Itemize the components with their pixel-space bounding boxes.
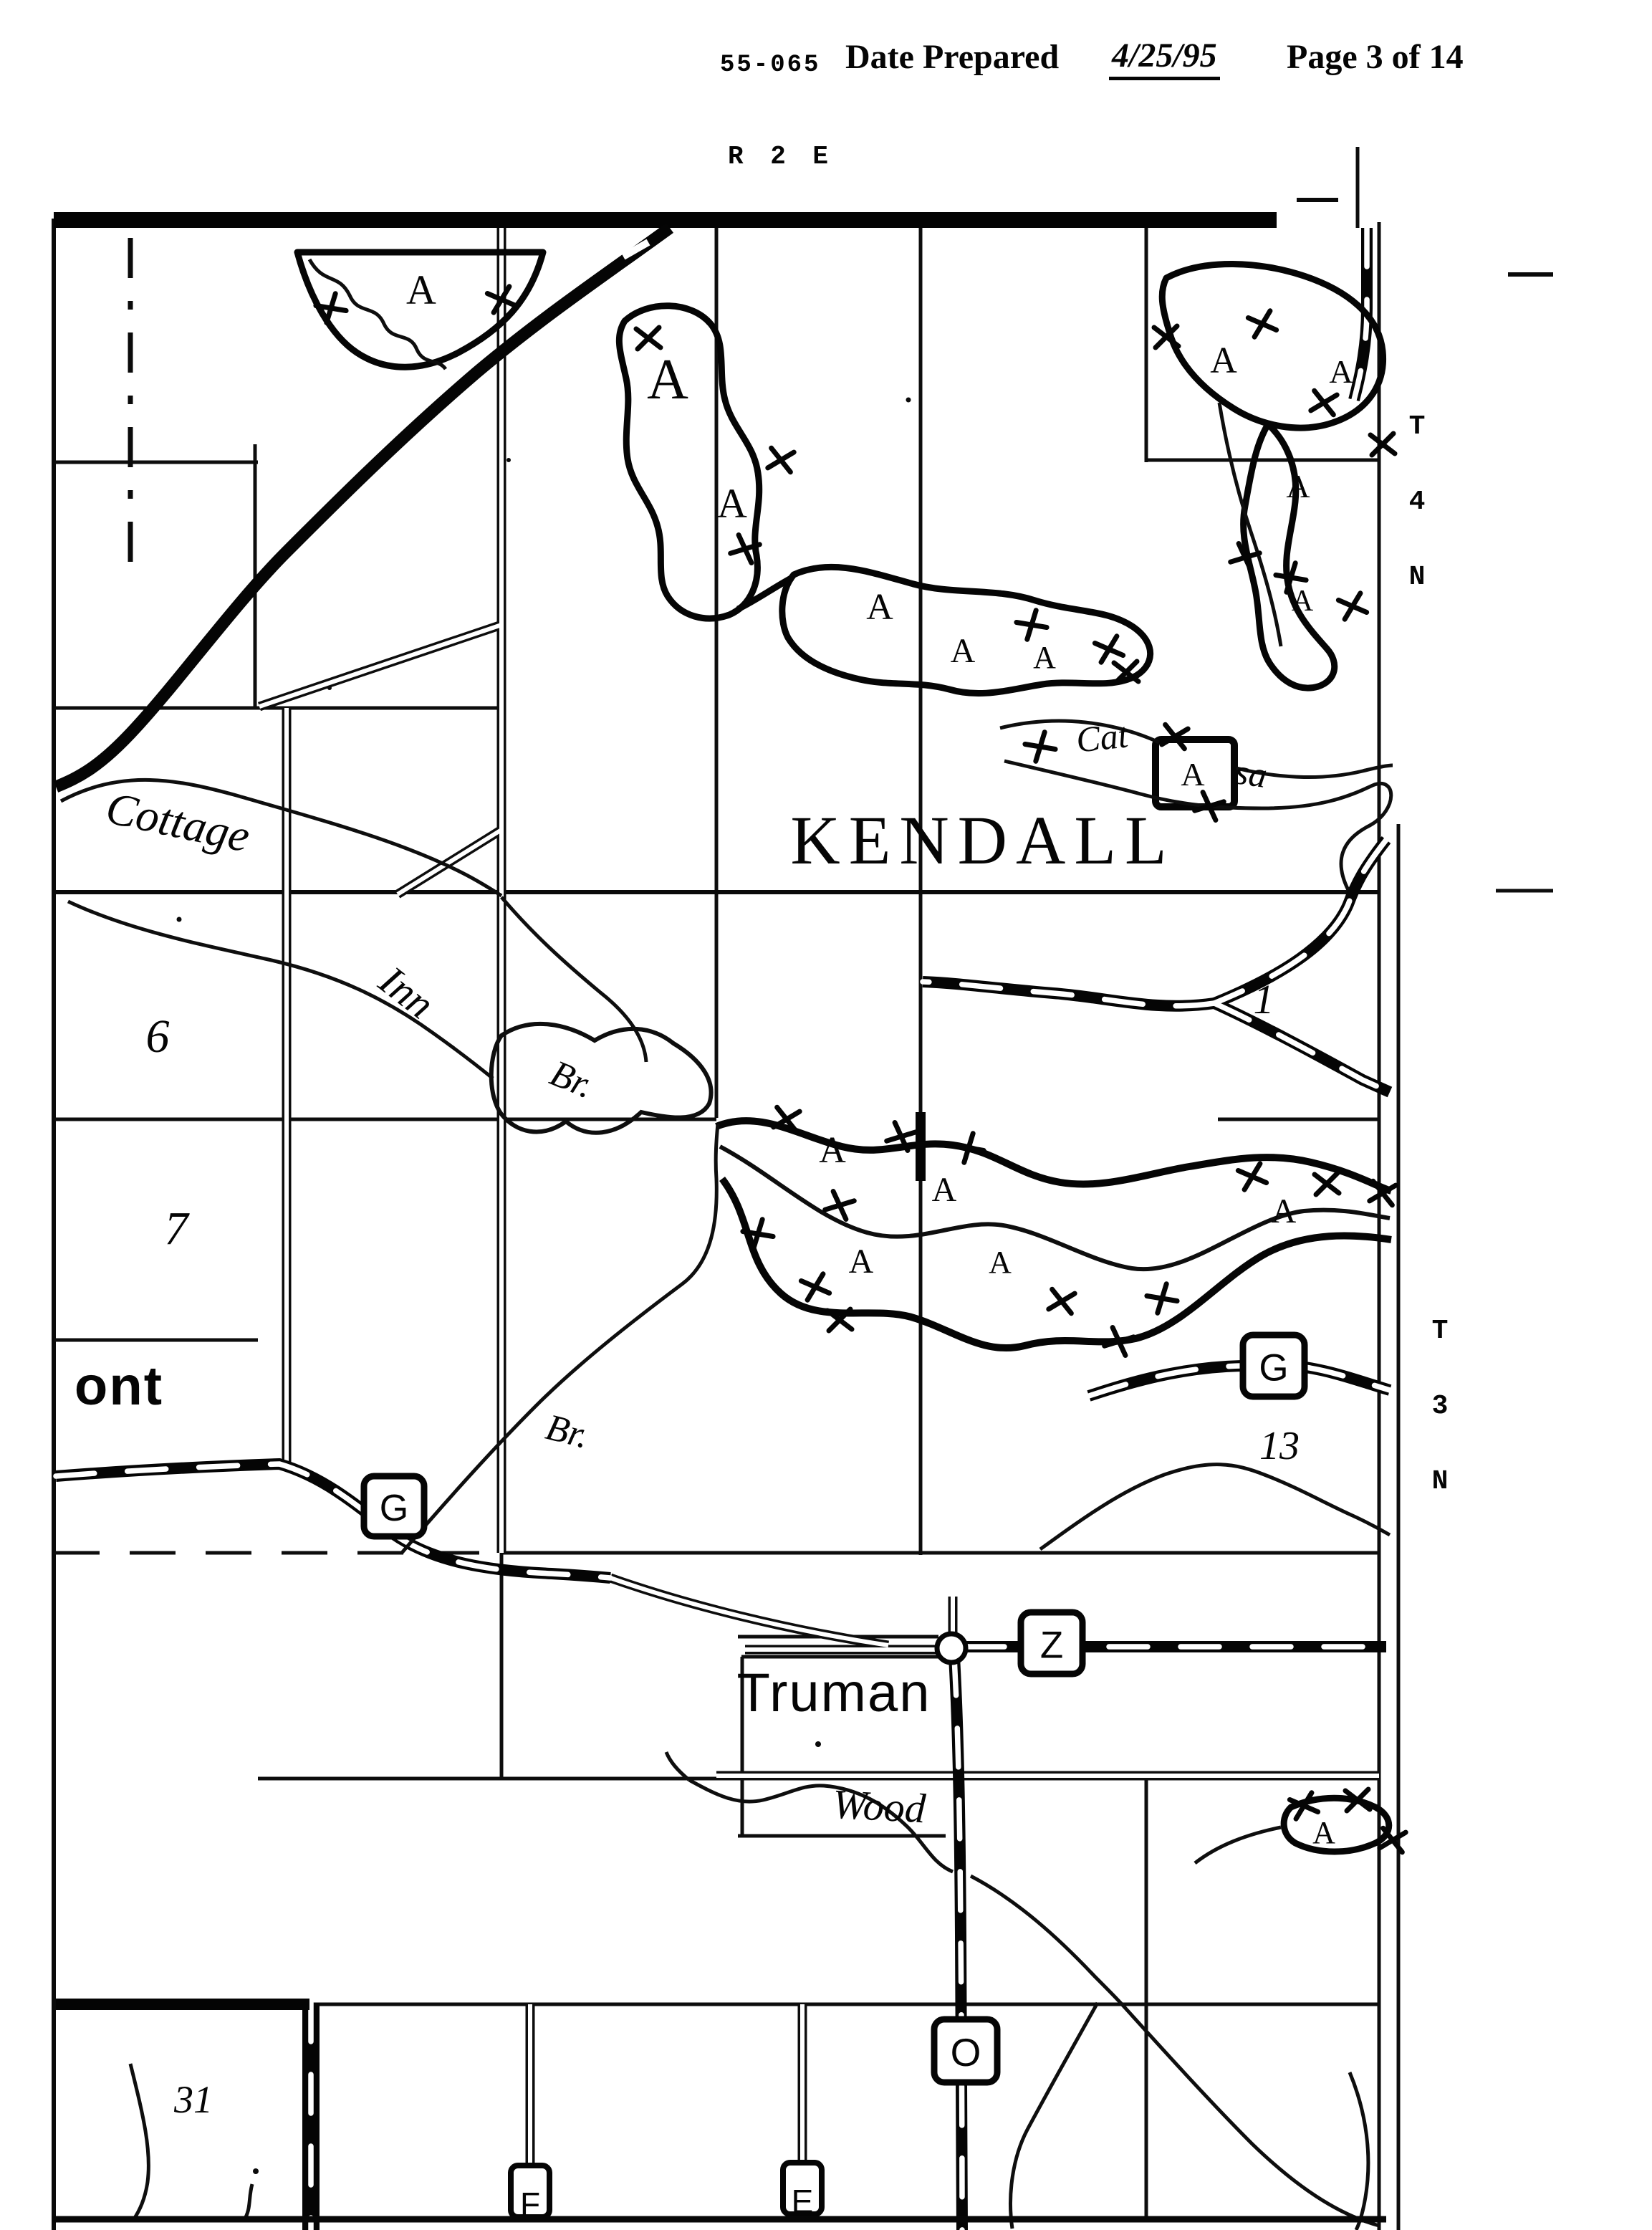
water-label-sa: sa xyxy=(1232,751,1269,795)
section-number-13: 13 xyxy=(1259,1424,1300,1468)
zone-a-label-12: A xyxy=(932,1171,957,1209)
section-number-1: 1 xyxy=(1254,976,1274,1023)
flood-zone-outlines xyxy=(297,252,1391,1863)
zone-tick-mark xyxy=(1024,732,1056,762)
zone-tick-mark xyxy=(1338,593,1367,619)
zone-a-label-4: A xyxy=(951,632,976,670)
township-ticks xyxy=(1297,147,1553,891)
zone-tick-mark xyxy=(315,293,347,323)
zone-a-label-0: A xyxy=(406,267,436,313)
zone-a-label-16: A xyxy=(1312,1815,1335,1850)
zone-tick-mark xyxy=(1315,1173,1339,1195)
zone-a-label-11: A xyxy=(819,1130,846,1171)
zone-a-label-15: A xyxy=(1272,1192,1297,1230)
diagonal-road xyxy=(56,228,670,787)
zone-tick-mark xyxy=(767,446,795,473)
zone-a-label-10: A xyxy=(1181,756,1204,793)
roads-double xyxy=(259,222,1379,2216)
place-label-truman: Truman xyxy=(736,1662,931,1723)
zone-tick-mark xyxy=(953,1133,984,1163)
road-junction-circle xyxy=(937,1634,966,1662)
zone-a-label-13: A xyxy=(849,1243,874,1281)
partial-route-marker-0: F xyxy=(511,2166,549,2223)
zone-tick-mark xyxy=(1368,1179,1397,1206)
section-number-7: 7 xyxy=(165,1202,191,1255)
zone-tick-mark xyxy=(1016,610,1047,640)
route-marker-g-1: G xyxy=(1243,1335,1305,1397)
zone-a-label-1: A xyxy=(647,348,688,411)
zone-a-label-7: A xyxy=(1329,353,1353,390)
route-marker-g-0: G xyxy=(364,1476,424,1536)
route-marker-letter: G xyxy=(380,1488,408,1529)
water-label-br-2: Br. xyxy=(542,1407,592,1457)
partial-marker-letter: E xyxy=(792,2183,814,2220)
water-label-wood: Wood xyxy=(831,1781,927,1832)
place-label-ont: ont xyxy=(75,1356,163,1417)
zone-a-label-2: A xyxy=(717,480,747,527)
place-label-kendall: KENDALL xyxy=(790,802,1175,879)
zone-tick-mark xyxy=(636,327,661,349)
section-number-31: 31 xyxy=(173,2078,213,2121)
water-label-inn: Inn xyxy=(370,957,443,1028)
map-canvas: KENDALLTrumanontCottageInnBr.Br.WoodCats… xyxy=(0,0,1652,2230)
zone-a-label-9: A xyxy=(1292,585,1314,618)
route-marker-letter: O xyxy=(951,2030,981,2075)
zone-tick-mark xyxy=(1047,1288,1076,1314)
route-marker-letter: G xyxy=(1259,1347,1288,1389)
section-number-6: 6 xyxy=(146,1010,170,1063)
route-marker-o-3: O xyxy=(934,2019,997,2082)
scanned-map-page: 55-065 Date Prepared 4/25/95 Page 3 of 1… xyxy=(0,0,1652,2230)
streams xyxy=(61,403,1393,2230)
zone-a-label-5: A xyxy=(1033,640,1056,675)
zone-a-label-14: A xyxy=(989,1245,1012,1280)
zone-a-label-3: A xyxy=(866,587,893,628)
water-label-cat: Cat xyxy=(1074,714,1130,760)
zone-tick-mark xyxy=(1370,434,1395,455)
zone-a-label-6: A xyxy=(1210,340,1237,381)
zone-tick-mark xyxy=(801,1273,830,1300)
zone-tick-mark xyxy=(1248,310,1277,337)
zone-tick-mark xyxy=(1146,1283,1178,1313)
zone-tick-mark xyxy=(1238,1163,1267,1190)
zone-tick-mark xyxy=(1095,636,1123,662)
map-linework xyxy=(54,147,1553,2230)
route-marker-letter: Z xyxy=(1040,1624,1063,1667)
partial-route-marker-1: E xyxy=(783,2163,822,2220)
route-marker-z-2: Z xyxy=(1021,1612,1082,1674)
water-label-br-1: Br. xyxy=(544,1053,599,1106)
zone-tick-mark xyxy=(1310,389,1338,416)
zone-a-label-8: A xyxy=(1286,468,1310,504)
